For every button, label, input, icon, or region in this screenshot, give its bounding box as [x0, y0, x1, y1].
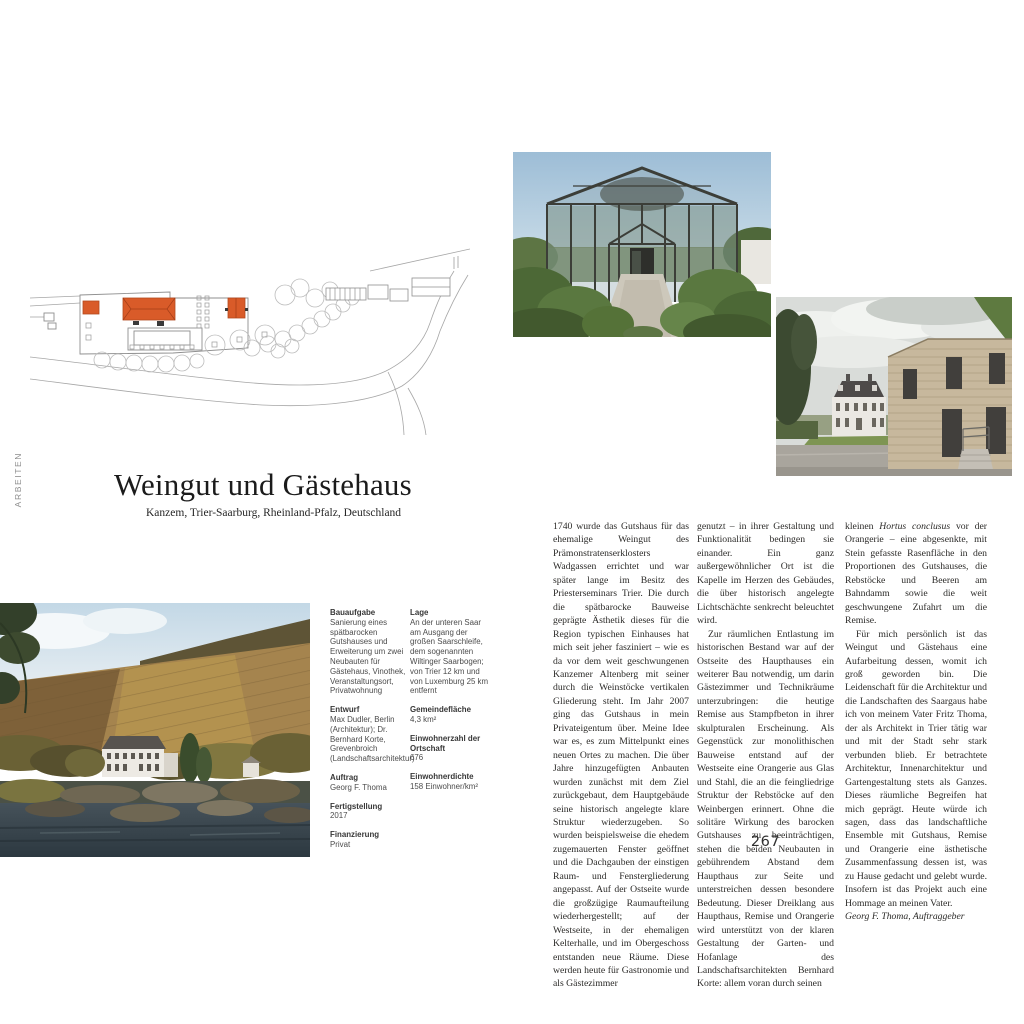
photo-vineyard-saar — [0, 603, 310, 857]
author-signature: Georg F. Thoma, Auftraggeber — [845, 910, 987, 923]
meta-value: Sanierung eines spätbarocken Gutshauses … — [330, 618, 407, 696]
project-location: Kanzem, Trier-Saarburg, Rheinland-Pfalz,… — [146, 507, 506, 519]
meta-label: Auftrag — [330, 773, 407, 783]
meta-label: Fertigstellung — [330, 802, 407, 812]
photo-remise — [776, 297, 1012, 476]
meta-einwohnerzahl: Einwohnerzahl der Ortschaft 676 — [410, 734, 494, 763]
meta-einwohnerdichte: Einwohnerdichte 158 Einwohner/km² — [410, 772, 494, 792]
article-paragraph: genutzt – in ihrer Gestaltung und Funkti… — [697, 520, 834, 628]
text-fragment: vor der Orangerie – eine abgesenkte, mit… — [845, 521, 987, 626]
meta-value: Georg F. Thoma — [330, 783, 407, 793]
article-column-1: 1740 wurde das Gutshaus für das ehemalig… — [553, 520, 689, 991]
article-paragraph: Zur räumlichen Entlastung im historische… — [697, 628, 834, 991]
meta-fertigstellung: Fertigstellung 2017 — [330, 802, 407, 822]
meta-finanzierung: Finanzierung Privat — [330, 830, 407, 850]
meta-label: Einwohnerzahl der Ortschaft — [410, 734, 494, 754]
project-facts-column: Bauaufgabe Sanierung eines spätbarocken … — [330, 608, 407, 859]
location-facts-column: Lage An der unteren Saar am Ausgang der … — [410, 608, 494, 801]
meta-gemeindeflaeche: Gemeindefläche 4,3 km² — [410, 705, 494, 725]
article-column-2: genutzt – in ihrer Gestaltung und Funkti… — [697, 520, 834, 991]
meta-bauaufgabe: Bauaufgabe Sanierung eines spätbarocken … — [330, 608, 407, 696]
article-paragraph: 1740 wurde das Gutshaus für das ehemalig… — [553, 520, 689, 991]
meta-value: Privat — [330, 840, 407, 850]
meta-value: 4,3 km² — [410, 715, 494, 725]
page-number: 267 — [697, 834, 834, 850]
meta-value: 158 Einwohner/km² — [410, 782, 494, 792]
article-paragraph: Für mich persönlich ist das Weingut und … — [845, 628, 987, 911]
meta-value: Max Dudler, Berlin (Architektur); Dr. Be… — [330, 715, 407, 764]
meta-lage: Lage An der unteren Saar am Ausgang der … — [410, 608, 494, 696]
meta-value: 2017 — [330, 811, 407, 821]
latin-term: Hortus conclusus — [879, 521, 950, 532]
chapter-side-label: ARBEITEN — [13, 452, 23, 507]
meta-label: Gemeindefläche — [410, 705, 494, 715]
article-paragraph: kleinen Hortus conclusus vor der Oranger… — [845, 520, 987, 628]
site-plan-drawing — [30, 145, 470, 435]
meta-label: Einwohnerdichte — [410, 772, 494, 782]
meta-value: 676 — [410, 753, 494, 763]
meta-value: An der unteren Saar am Ausgang der große… — [410, 618, 494, 696]
meta-label: Bauaufgabe — [330, 608, 407, 618]
meta-label: Entwurf — [330, 705, 407, 715]
meta-label: Lage — [410, 608, 494, 618]
text-fragment: kleinen — [845, 521, 879, 532]
project-title: Weingut und Gästehaus — [114, 467, 534, 503]
meta-auftrag: Auftrag Georg F. Thoma — [330, 773, 407, 793]
meta-entwurf: Entwurf Max Dudler, Berlin (Architektur)… — [330, 705, 407, 764]
photo-orangerie — [513, 152, 771, 337]
meta-label: Finanzierung — [330, 830, 407, 840]
article-column-3: kleinen Hortus conclusus vor der Oranger… — [845, 520, 987, 924]
